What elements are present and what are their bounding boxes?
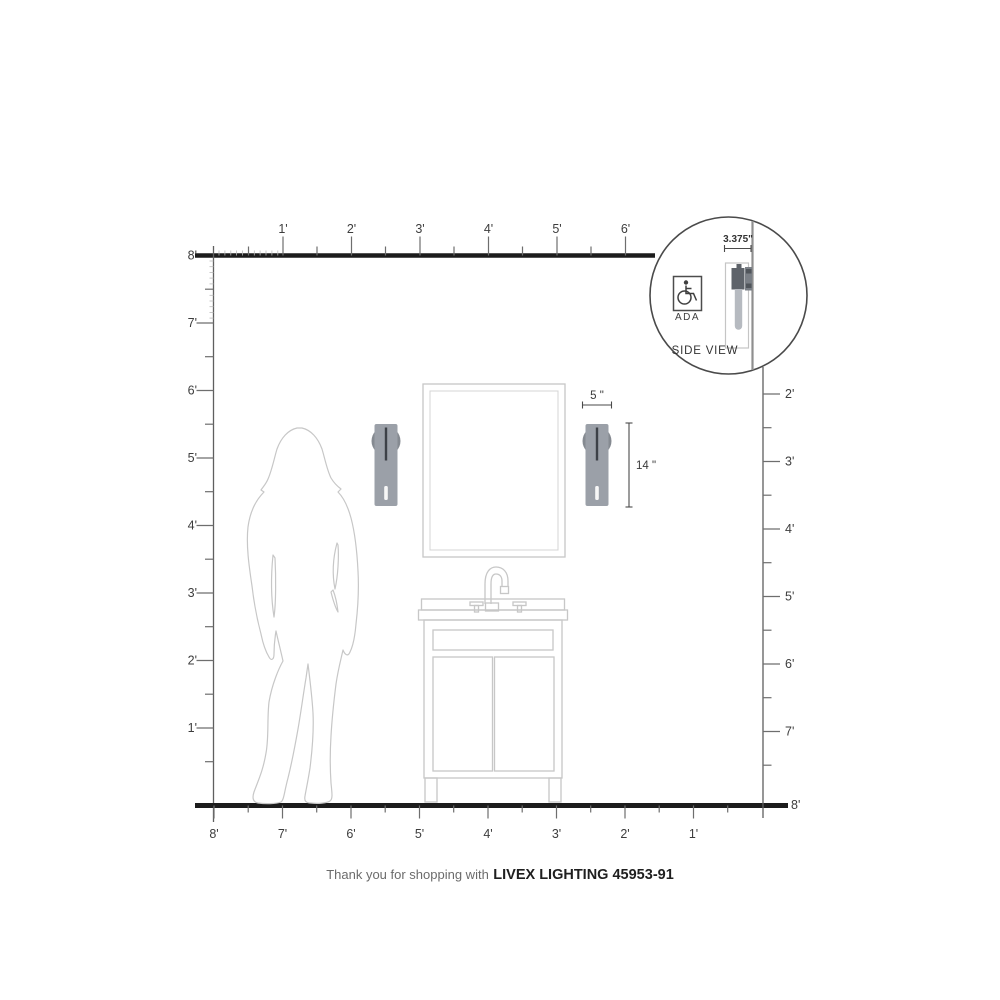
sconce-accent-line — [385, 428, 387, 461]
sconce-width-dimension: 5 " — [583, 390, 612, 409]
top-ruler: 1' 2' 3' 4' 5' 6' — [195, 222, 655, 256]
footer-prefix: Thank you for shopping with — [326, 867, 489, 882]
side-glass-cylinder — [735, 289, 742, 330]
vanity-door-right — [495, 657, 555, 771]
ruler-label: 5' — [552, 222, 561, 236]
ruler-label: 1' — [188, 721, 197, 735]
ruler-label: 1' — [689, 827, 698, 841]
vanity-door-left — [433, 657, 493, 771]
ruler-label: 5' — [785, 590, 794, 604]
ruler-label: 3' — [415, 222, 424, 236]
ruler-label: 7' — [278, 827, 287, 841]
side-view-label: SIDE VIEW — [672, 345, 739, 357]
ruler-label: 3' — [552, 827, 561, 841]
sconce-slot — [595, 486, 599, 500]
ruler-label: 3' — [785, 455, 794, 469]
sconce-side-profile — [726, 263, 753, 348]
vanity-leg-left — [425, 778, 437, 802]
ruler-label: 2' — [620, 827, 629, 841]
ada-badge: ADA — [674, 277, 702, 324]
width-dimension-label: 5 " — [590, 390, 604, 402]
ruler-label: 6' — [346, 827, 355, 841]
wall-sconce-left — [372, 424, 401, 506]
height-dimension-label: 14 " — [636, 460, 656, 472]
diagram-svg: 1' 2' 3' 4' 5' 6' 8' 7 — [0, 0, 1000, 1000]
ruler-label: 5' — [188, 451, 197, 465]
sconce-height-dimension: 14 " — [626, 423, 657, 507]
footer-text: Thank you for shopping with LIVEX LIGHTI… — [0, 866, 1000, 884]
vanity-backsplash — [422, 599, 565, 610]
ruler-label: 1' — [278, 222, 287, 236]
footer-product-id: LIVEX LIGHTING 45953-91 — [493, 867, 674, 883]
ruler-label: 8' — [791, 798, 800, 812]
vanity-drawer — [433, 630, 553, 650]
ruler-label: 5' — [415, 827, 424, 841]
ruler-label: 7' — [785, 725, 794, 739]
side-fixture-head — [732, 268, 745, 290]
wall-sconce-right — [583, 424, 612, 506]
right-ruler: 2' 3' 4' 5' 6' 7' 8' — [763, 367, 800, 818]
sconce-accent-line — [596, 428, 598, 461]
ruler-label: 6' — [785, 657, 794, 671]
ruler-label: 4' — [484, 222, 493, 236]
ruler-label: 6' — [188, 384, 197, 398]
ada-label: ADA — [675, 312, 700, 323]
vanity-leg-right — [549, 778, 561, 802]
bottom-ruler: 8' 7' 6' 5' 4' 3' 2' 1' — [195, 806, 788, 842]
vanity — [419, 567, 568, 802]
inset-side-view: 3.375" ADA SIDE VIEW — [650, 217, 807, 374]
ruler-label: 2' — [347, 222, 356, 236]
ruler-label: 8' — [188, 249, 197, 263]
ruler-label: 4' — [785, 522, 794, 536]
ruler-label: 2' — [188, 654, 197, 668]
ruler-label: 4' — [188, 519, 197, 533]
ruler-label: 6' — [621, 222, 630, 236]
ruler-label: 8' — [209, 827, 218, 841]
inset-dimension-label: 3.375" — [723, 234, 753, 245]
faucet — [470, 567, 526, 612]
ruler-label: 4' — [483, 827, 492, 841]
scale-figure-silhouette — [247, 428, 358, 804]
dimension-diagram: 1' 2' 3' 4' 5' 6' 8' 7 — [0, 0, 1000, 1000]
sconce-slot — [384, 486, 388, 500]
mirror — [423, 384, 565, 557]
left-ruler: 8' 7' 6' 5' 4' 3' 2' 1' — [188, 246, 214, 822]
ruler-label: 3' — [188, 586, 197, 600]
ruler-label: 2' — [785, 387, 794, 401]
ruler-label: 7' — [188, 316, 197, 330]
